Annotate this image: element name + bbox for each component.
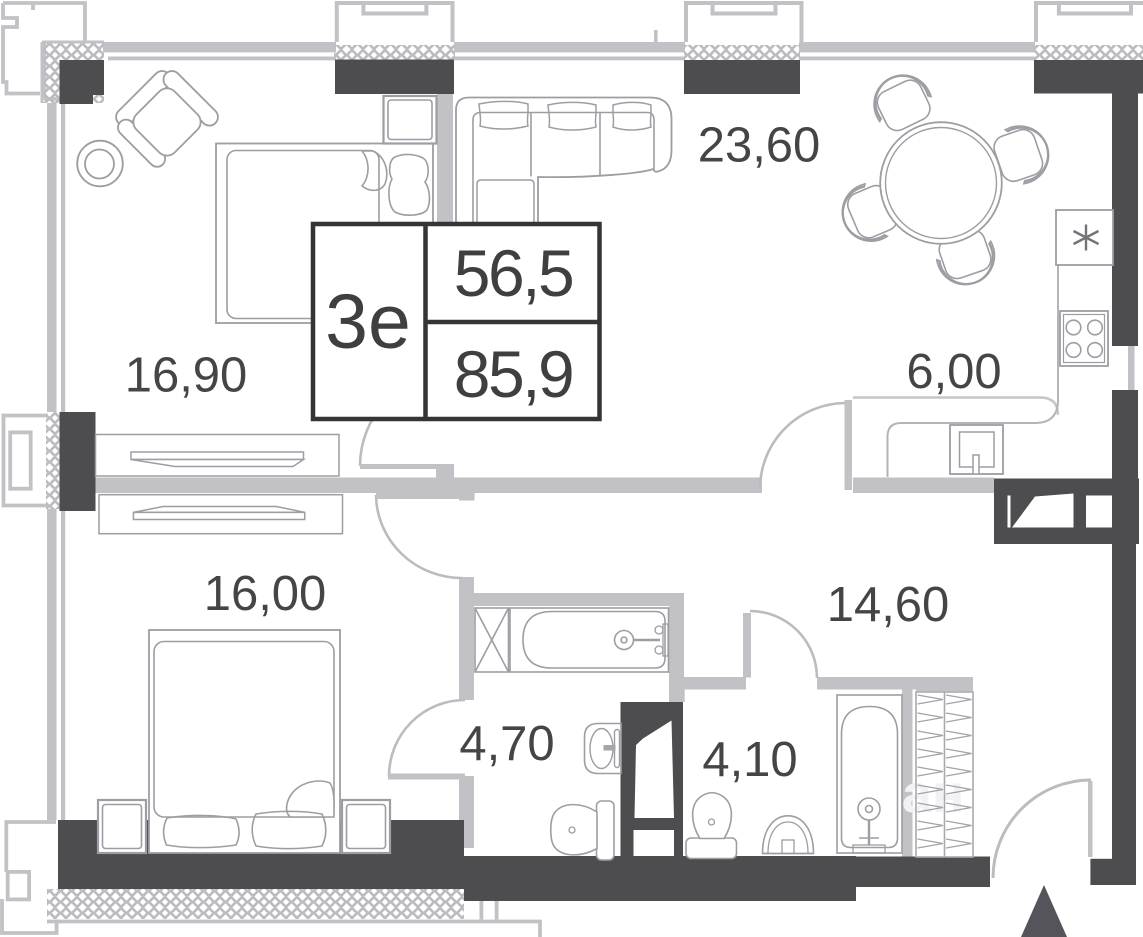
svg-text:56,5: 56,5: [454, 236, 572, 310]
svg-text:6,00: 6,00: [906, 345, 1001, 399]
svg-text:4,70: 4,70: [459, 717, 554, 771]
svg-text:3е: 3е: [325, 279, 411, 365]
svg-text:85,9: 85,9: [454, 337, 572, 411]
svg-text:16,00: 16,00: [204, 567, 327, 621]
svg-text:14,60: 14,60: [827, 578, 950, 632]
svg-text:4,10: 4,10: [702, 733, 797, 787]
svg-text:16,90: 16,90: [125, 349, 248, 403]
svg-text:23,60: 23,60: [698, 119, 821, 173]
